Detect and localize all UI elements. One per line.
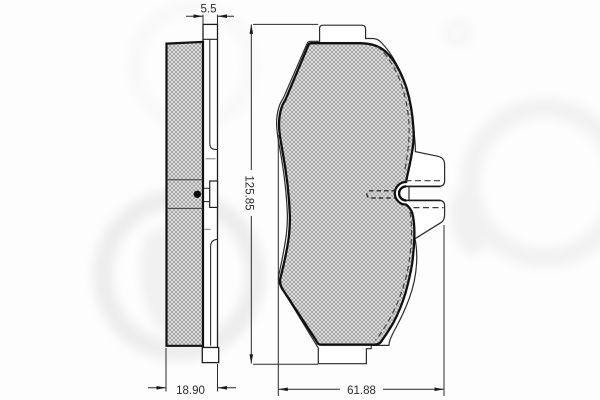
svg-text:5.5: 5.5 xyxy=(201,3,217,15)
svg-text:61.88: 61.88 xyxy=(347,385,376,397)
svg-text:125.85: 125.85 xyxy=(243,175,255,210)
svg-text:18.90: 18.90 xyxy=(176,385,205,397)
